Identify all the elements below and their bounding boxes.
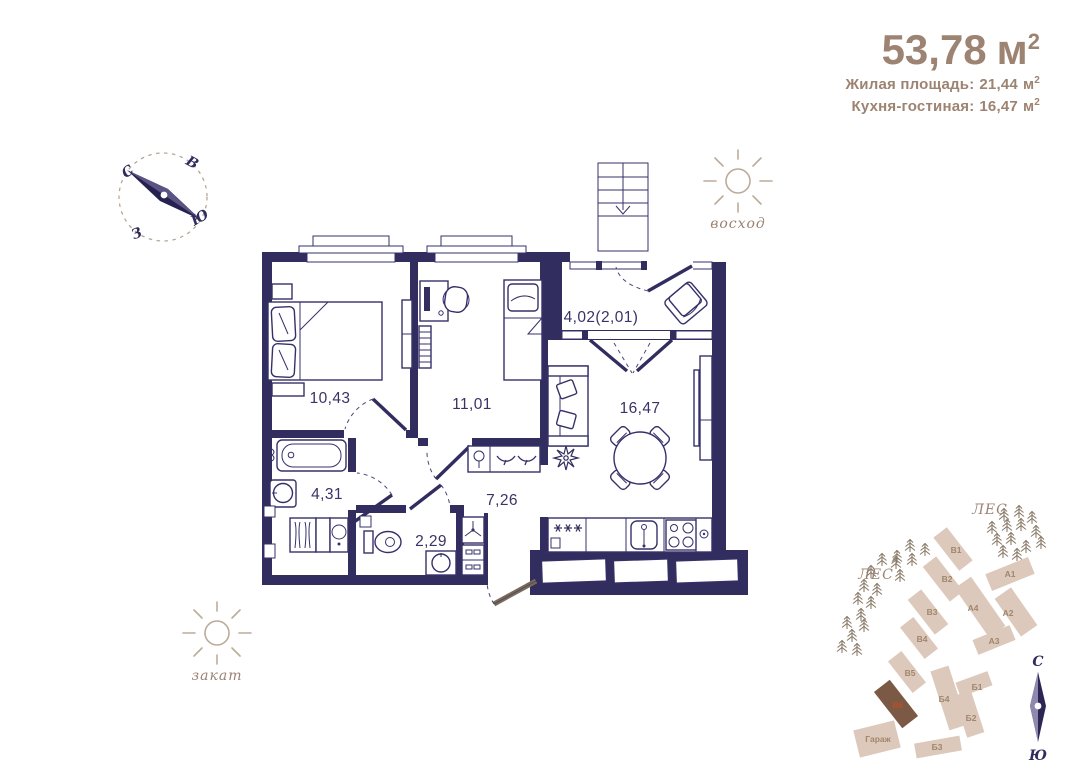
room-label-bedroom-1: 10,43 — [310, 390, 351, 407]
tv-cabinet — [694, 356, 712, 460]
vent-shaft — [360, 516, 371, 527]
compass-rose: С В Ю З — [119, 153, 212, 244]
dining-table — [609, 425, 671, 491]
door-bedroom-2 — [427, 446, 470, 479]
sunset-icon — [183, 602, 251, 664]
compass-north-label: С — [119, 162, 137, 182]
building-label-a2: А2 — [1003, 608, 1014, 618]
room-label-kitchen-living: 16,47 — [620, 400, 661, 417]
building-label-a3: А3 — [989, 636, 1000, 646]
compass-south-label: Ю — [187, 207, 211, 230]
window-bedroom-2 — [427, 236, 526, 262]
building-label-b1: Б1 — [972, 682, 983, 692]
building-label-v1: В1 — [951, 545, 962, 555]
kitchen-sink — [631, 521, 657, 549]
site-compass-pivot — [1035, 703, 1042, 710]
building-label-v5: В5 — [905, 668, 916, 678]
wc-sink — [426, 551, 456, 575]
site-compass-south-label: Ю — [1028, 748, 1047, 764]
building-label-v2: В2 — [942, 574, 953, 584]
door-bathroom — [354, 473, 392, 522]
building-label-a1: А1 — [1005, 569, 1016, 579]
room-label-bedroom-2: 11,01 — [452, 396, 492, 413]
kitchen-counter — [548, 518, 712, 552]
washing-machine — [290, 518, 316, 552]
bath-cabinet — [316, 518, 330, 552]
building-label-b3: Б3 — [932, 742, 943, 752]
building-label-b4: Б4 — [939, 694, 950, 704]
window-bedroom-1 — [299, 236, 403, 262]
building-label-garage: Гараж — [865, 734, 891, 744]
sunrise-icon — [704, 150, 772, 212]
floor-plan: 10,43 11,01 4,31 2,29 7,26 16,47 4,02(2,… — [262, 163, 748, 604]
sunrise-label: восход — [710, 216, 766, 232]
room-label-bathroom: 4,31 — [311, 486, 343, 503]
scene: С В Ю З восход — [0, 0, 1086, 771]
sofa — [548, 366, 588, 446]
room-label-hall: 7,26 — [486, 492, 518, 509]
site-compass-north-label: С — [1032, 654, 1043, 670]
room-label-wc: 2,29 — [415, 533, 447, 550]
floorplan-page: 53,78м2 Жилая площадь:21,44м2 Кухня-гост… — [0, 0, 1086, 771]
bathtub — [272, 440, 346, 471]
building-label-v6: В6 — [893, 700, 904, 710]
building-label-v4: В4 — [917, 634, 928, 644]
toilet — [364, 531, 401, 553]
double-bed — [268, 302, 382, 380]
coat-rack — [468, 446, 540, 472]
sink-cabinet — [330, 518, 348, 552]
vent-unit — [462, 517, 484, 543]
site-plan: ЛЕС ЛЕС — [837, 502, 1047, 764]
kitchen-windows — [542, 559, 739, 583]
site-compass: С Ю — [1028, 654, 1047, 764]
plant — [554, 446, 578, 470]
door-wc — [410, 485, 450, 509]
compass-west-label: З — [129, 225, 144, 244]
shaft — [264, 544, 275, 558]
door-bedroom-1 — [345, 399, 406, 430]
entrance-door — [487, 581, 536, 604]
shoe-cabinet — [462, 545, 484, 575]
single-bed — [504, 280, 542, 380]
radiator — [419, 326, 431, 368]
sunset-label: закат — [192, 668, 243, 684]
room-label-balcony: 4,02(2,01) — [564, 309, 639, 326]
building-label-b2: Б2 — [966, 713, 977, 723]
compass-pivot — [161, 192, 168, 199]
wardrobe — [402, 300, 412, 368]
armchair — [663, 281, 708, 326]
washbasin — [270, 480, 296, 507]
compass-east-label: В — [182, 153, 201, 173]
building-label-a4: А4 — [968, 603, 979, 613]
desk — [420, 281, 448, 321]
dresser — [272, 383, 304, 396]
nightstand — [272, 284, 292, 299]
shaft — [264, 506, 275, 517]
building-label-v3: В3 — [927, 607, 938, 617]
stairs — [598, 163, 648, 251]
